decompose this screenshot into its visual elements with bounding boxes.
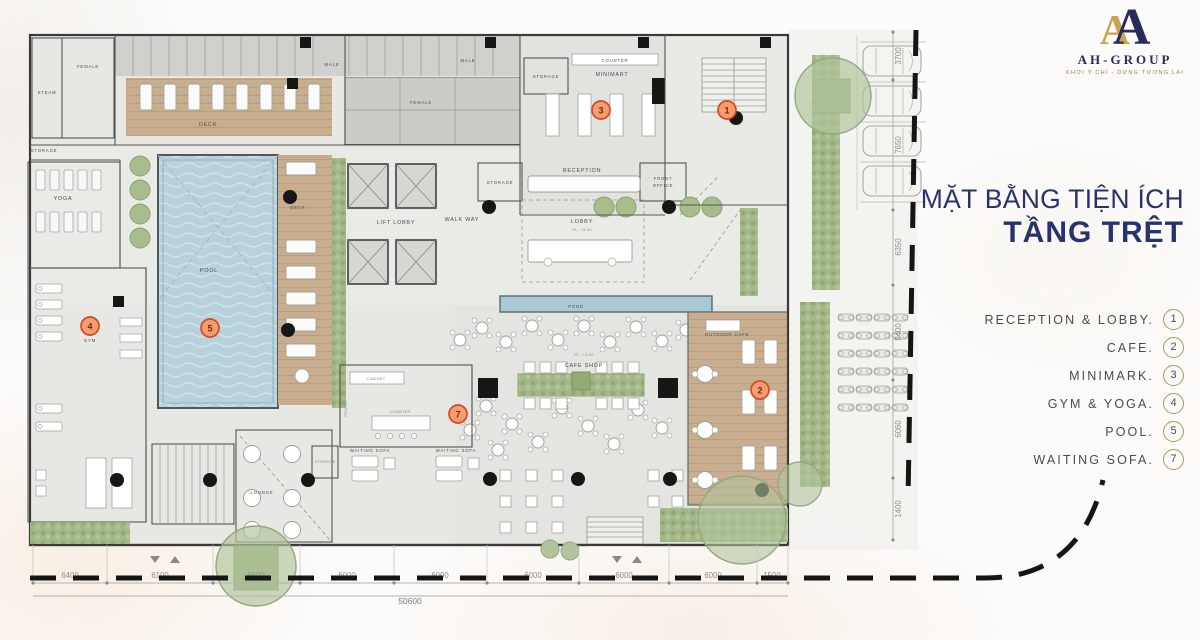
room-label-male-a: MALE — [325, 62, 340, 67]
legend-item-gym-yoga: GYM & YOGA. 4 — [984, 393, 1184, 414]
room-label-female-a: FEMALE — [77, 64, 99, 69]
legend-item-waiting-sofa: WAITING SOFA. 7 — [984, 449, 1184, 470]
legend-number-badge: 2 — [1163, 337, 1184, 358]
marker-5: 5 — [201, 319, 219, 337]
legend-number-badge: 4 — [1163, 393, 1184, 414]
level-tag-lobby: PL. +3.00 — [572, 227, 592, 232]
marker-1: 1 — [718, 101, 736, 119]
pool-zone — [130, 155, 346, 408]
legend-number-badge: 5 — [1163, 421, 1184, 442]
room-label-storage-d: STORAGE — [314, 459, 335, 464]
room-label-storage-c: STORAGE — [487, 180, 514, 185]
legend-item-reception-lobby: RECEPTION & LOBBY. 1 — [984, 309, 1184, 330]
svg-text:2: 2 — [757, 385, 762, 395]
total-dimension: 50600 — [398, 596, 422, 606]
hedge-strip-right — [800, 302, 830, 487]
brand-logo: AA AH-GROUP KHƠI Ý CHÍ - DỰNG TƯƠNG LAI — [1066, 2, 1184, 76]
room-label-lounge: LOUNGE — [251, 490, 274, 495]
legend-item-minimark: MINIMARK. 3 — [984, 365, 1184, 386]
room-label-steam: STEAM — [38, 90, 57, 95]
room-label-waiting-b: WAITING SOFA — [436, 448, 476, 453]
room-label-female-b: FEMALE — [410, 100, 432, 105]
building — [28, 35, 788, 563]
room-label-yoga: YOGA — [54, 196, 73, 202]
room-label-storage-a: STORAGE — [31, 148, 58, 153]
room-label-minimart: MINIMART — [596, 72, 629, 78]
room-label-cafe-shop: CAFE SHOP — [565, 363, 603, 369]
room-label-storage-b: STORAGE — [533, 74, 560, 79]
room-label-outdoor-cafe: OUTDOOR CAFE — [705, 332, 749, 337]
room-label-lift-lobby: LIFT LOBBY — [377, 220, 415, 226]
svg-text:1: 1 — [724, 105, 729, 115]
brand-name: AH-GROUP — [1066, 52, 1184, 68]
room-label-waiting-a: WAITING SOFA — [350, 448, 390, 453]
svg-text:7: 7 — [455, 409, 460, 419]
room-label-reception: RECEPTION — [563, 168, 602, 174]
svg-text:3: 3 — [598, 105, 603, 115]
room-label-front-office-1: FRONT — [654, 176, 673, 181]
room-label-lobby: LOBBY — [571, 219, 593, 225]
room-label-front-office-2: OFFICE — [653, 183, 674, 188]
room-label-gym: GYM — [84, 338, 96, 343]
title-line-1: MẶT BẰNG TIỆN ÍCH — [921, 184, 1184, 215]
legend-item-cafe: CAFE. 2 — [984, 337, 1184, 358]
marker-7: 7 — [449, 405, 467, 423]
room-label-counter-b: COUNTER — [389, 409, 410, 414]
marker-3: 3 — [592, 101, 610, 119]
svg-text:5: 5 — [207, 323, 212, 333]
info-panel: AA AH-GROUP KHƠI Ý CHÍ - DỰNG TƯƠNG LAI … — [896, 0, 1186, 640]
room-label-male-b: MALE — [461, 58, 476, 63]
legend-label: POOL. — [1105, 425, 1154, 439]
legend-label: WAITING SOFA. — [1033, 453, 1154, 467]
room-label-deck-right: DECK — [290, 205, 305, 210]
title-line-2: TẦNG TRỆT — [921, 215, 1184, 250]
legend: RECEPTION & LOBBY. 1 CAFE. 2 MINIMARK. 3… — [984, 309, 1184, 477]
top-deck — [126, 78, 332, 136]
legend-item-pool: POOL. 5 — [984, 421, 1184, 442]
room-label-pool: POOL — [200, 268, 218, 274]
logo-monogram-icon: AA — [1066, 2, 1184, 54]
brand-tagline: KHƠI Ý CHÍ - DỰNG TƯƠNG LAI — [1066, 70, 1184, 76]
room-label-pond: POND — [568, 304, 584, 309]
legend-number-badge: 1 — [1163, 309, 1184, 330]
svg-text:4: 4 — [87, 321, 92, 331]
legend-label: CAFE. — [1107, 341, 1154, 355]
room-label-pantry: PANTRY — [343, 399, 348, 416]
legend-label: GYM & YOGA. — [1048, 397, 1154, 411]
room-label-cabinet: CABINET — [367, 376, 386, 381]
marker-4: 4 — [81, 317, 99, 335]
legend-label: MINIMARK. — [1069, 369, 1154, 383]
legend-number-badge: 3 — [1163, 365, 1184, 386]
room-label-walk-way: WALK WAY — [445, 217, 480, 223]
room-label-deck-top: DECK — [199, 122, 217, 128]
marker-2: 2 — [751, 381, 769, 399]
page-title: MẶT BẰNG TIỆN ÍCH TẦNG TRỆT — [921, 184, 1184, 251]
svg-text:6000: 6000 — [615, 571, 633, 580]
logo-letter-navy: A — [1113, 0, 1151, 56]
level-tag-cafe: PL. +3.00 — [574, 352, 594, 357]
legend-number-badge: 7 — [1163, 449, 1184, 470]
room-label-counter-a: COUNTER — [602, 58, 629, 63]
legend-label: RECEPTION & LOBBY. — [984, 313, 1154, 327]
